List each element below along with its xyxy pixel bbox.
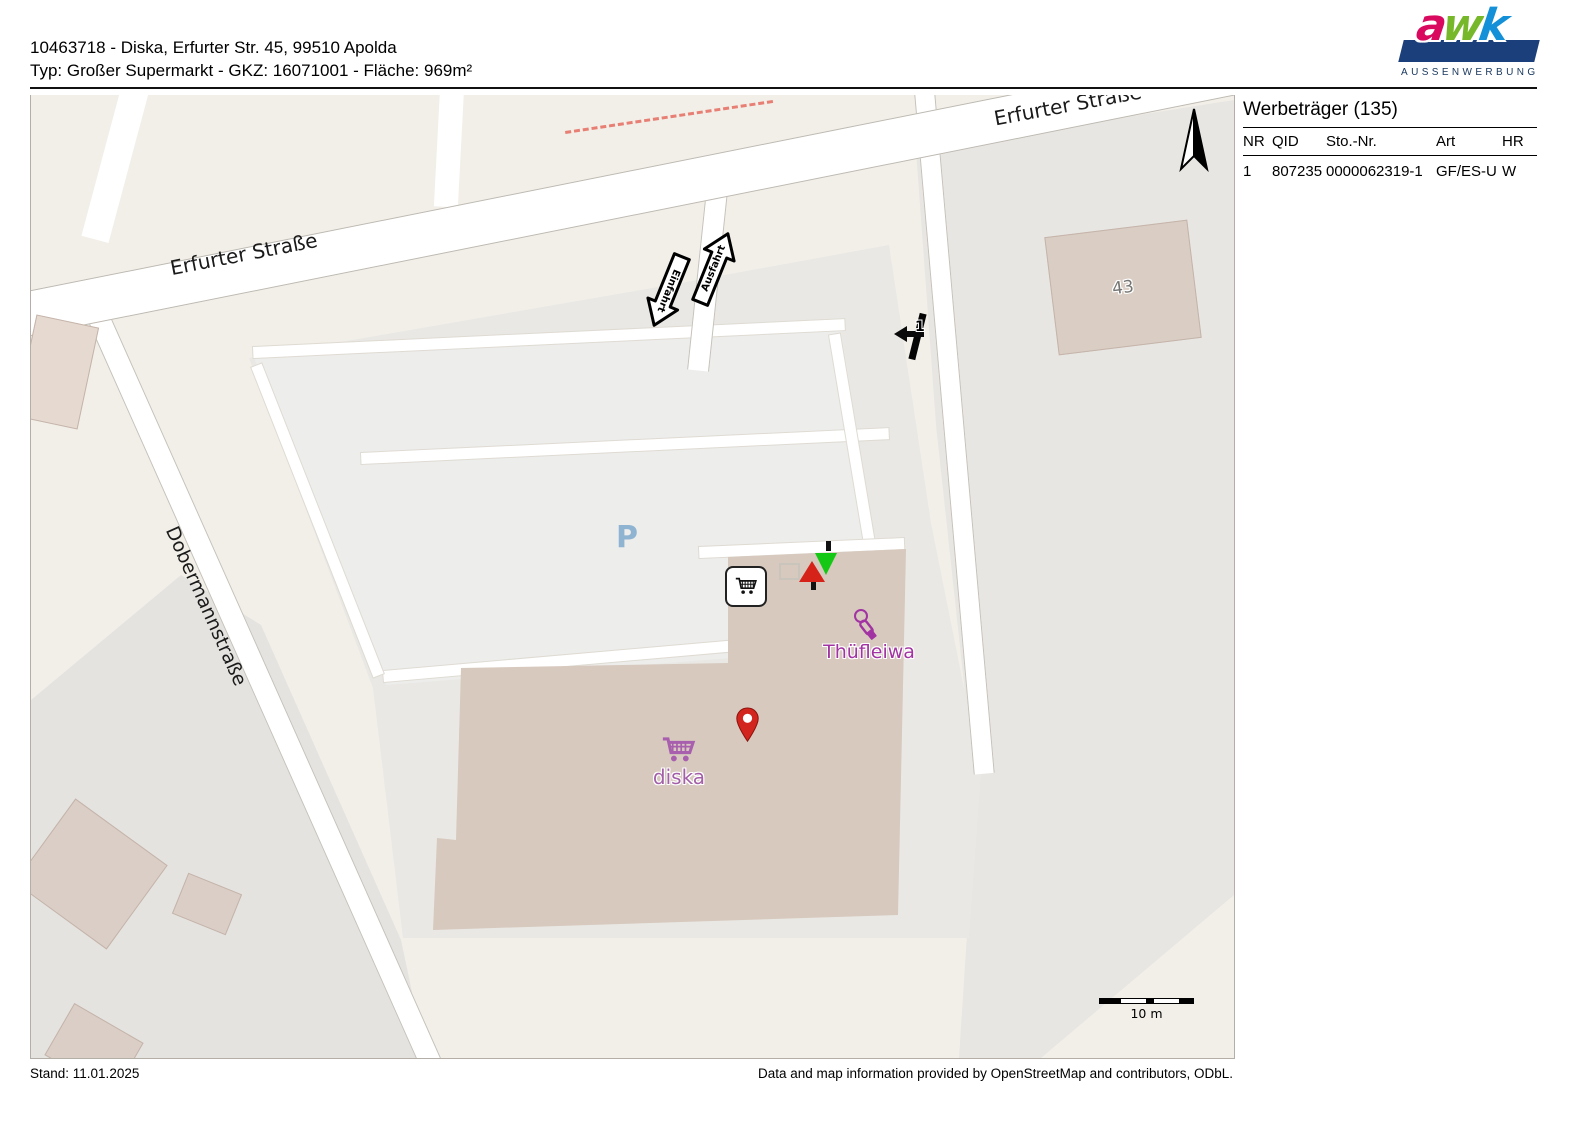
cell-art: GF/ES-U xyxy=(1436,156,1502,185)
col-nr: NR xyxy=(1243,128,1272,156)
col-hr: HR xyxy=(1502,128,1537,156)
werbetraeger-panel: Werbeträger (135) NR QID Sto.-Nr. Art HR… xyxy=(1243,98,1537,184)
dashed-path xyxy=(565,100,773,134)
panel-title: Werbeträger (135) xyxy=(1243,98,1537,122)
cell-qid: 807235 xyxy=(1272,156,1326,185)
diska-cart-icon xyxy=(658,733,700,767)
col-art: Art xyxy=(1436,128,1502,156)
logo-subtitle: AUSSENWERBUNG xyxy=(1401,67,1541,78)
page-subtitle: Typ: Großer Supermarkt - GKZ: 16071001 -… xyxy=(30,60,472,82)
scale-segment xyxy=(1121,999,1146,1003)
scale-bar xyxy=(1099,998,1194,1004)
footpath xyxy=(81,95,148,243)
building-43: 43 xyxy=(1044,220,1201,356)
col-sto-nr: Sto.-Nr. xyxy=(1326,128,1436,156)
parking-label: P xyxy=(616,520,638,555)
marker-number: 1 xyxy=(915,319,925,335)
table-row: 1 807235 0000062319-1 GF/ES-U W xyxy=(1243,156,1537,185)
thuefleiwa-poi-icon xyxy=(851,607,881,645)
werbetraeger-table: NR QID Sto.-Nr. Art HR 1 807235 00000623… xyxy=(1243,127,1537,184)
scale-segment xyxy=(1154,999,1179,1003)
marker-stem xyxy=(826,541,831,551)
location-pin-icon xyxy=(735,707,760,743)
cell-sto-nr: 0000062319-1 xyxy=(1326,156,1436,185)
werbetraeger-marker-1: 1 xyxy=(886,307,946,367)
footpath xyxy=(434,95,464,208)
north-arrow-icon xyxy=(1173,107,1215,173)
logo-wordmark: awk xyxy=(1413,0,1508,51)
cell-hr: W xyxy=(1502,156,1537,185)
page-title: 10463718 - Diska, Erfurter Str. 45, 9951… xyxy=(30,37,397,59)
thuefleiwa-label: Thüfleiwa xyxy=(819,641,919,663)
supermarket-poi xyxy=(725,566,767,607)
house-number-label: 43 xyxy=(1111,276,1135,298)
header-divider xyxy=(30,87,1537,89)
awk-logo: awk AUSSENWERBUNG xyxy=(1401,10,1537,84)
building xyxy=(30,314,99,429)
table-header-row: NR QID Sto.-Nr. Art HR xyxy=(1243,128,1537,156)
cell-nr: 1 xyxy=(1243,156,1272,185)
exit-marker-green xyxy=(815,553,837,575)
col-qid: QID xyxy=(1272,128,1326,156)
diska-label: diska xyxy=(629,765,729,789)
building-outline xyxy=(779,563,800,580)
map-canvas: 43 Erfurter Straße Erfurter Straße Dober… xyxy=(30,95,1235,1059)
map-attribution: Data and map information provided by Ope… xyxy=(33,1066,1233,1081)
marker-stem xyxy=(811,581,816,590)
shopping-cart-icon xyxy=(733,573,760,600)
scale-label: 10 m xyxy=(1099,1006,1194,1021)
